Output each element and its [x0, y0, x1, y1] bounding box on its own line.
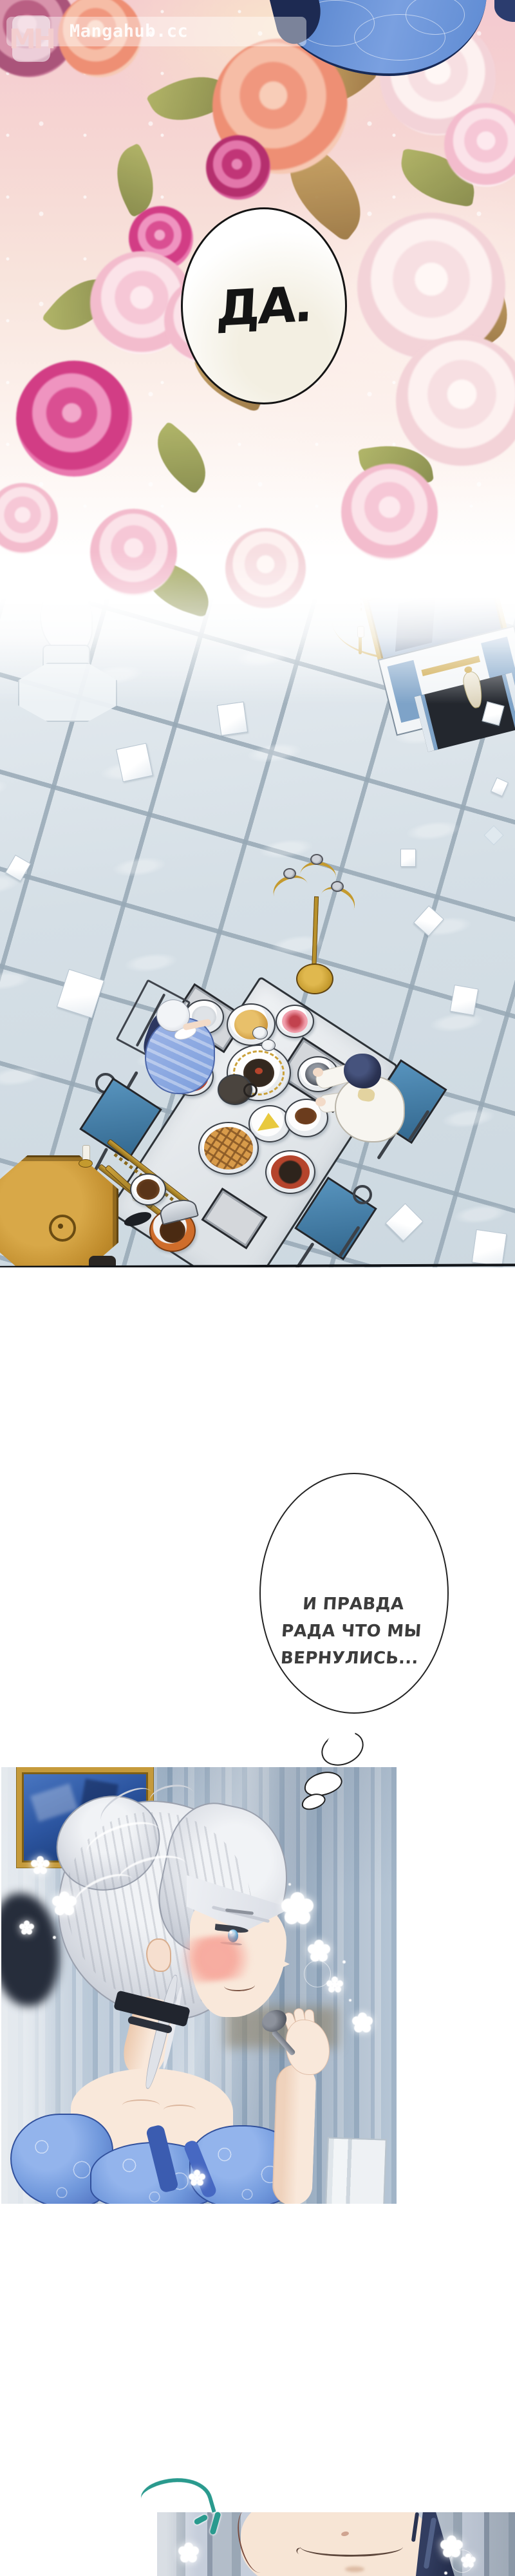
- flower-sparkle: [332, 1982, 337, 1987]
- blush: [172, 1931, 260, 1985]
- thought-line-1: И ПРАВДА: [302, 1591, 405, 1618]
- cup: [261, 1039, 276, 1051]
- cart-dish: [130, 1173, 166, 1206]
- woman-portrait-panel: [1, 1767, 397, 2204]
- rose-flower: [206, 135, 270, 200]
- rose-flower: [16, 361, 132, 477]
- thought-bubble-text: И ПРАВДА РАДА ЧТО МЫ ВЕРНУЛИСЬ...: [252, 1474, 456, 1712]
- woman-arm: [272, 2064, 317, 2204]
- man-closeup-panel: [157, 2512, 515, 2576]
- sparkle-dot: [444, 2571, 447, 2575]
- scattered-paper: [400, 849, 416, 867]
- plate-red: [265, 1150, 315, 1194]
- collarbone-line: [122, 2099, 160, 2111]
- rose-flower: [90, 509, 177, 596]
- scattered-paper: [217, 701, 248, 735]
- plate-dessert: [276, 1005, 314, 1038]
- teapot: [218, 1074, 252, 1105]
- speech-bubble-yes-text: ДА.: [215, 275, 313, 337]
- speech-bubble-yes: ДА.: [181, 207, 347, 404]
- woman-ear: [146, 1938, 171, 1972]
- sparkle-dot: [349, 1999, 351, 2002]
- flower-sparkle: [359, 2020, 366, 2026]
- plate-waffle: [198, 1122, 259, 1175]
- flower-sparkle: [37, 1862, 43, 1868]
- flower-intro-panel: MH Mangahub.cc ДА.: [0, 0, 515, 657]
- cart-candle-cup: [79, 1159, 93, 1168]
- flower-sparkle: [24, 1926, 29, 1930]
- door-molding: [325, 2137, 387, 2204]
- sparkle-dot: [53, 1936, 56, 1939]
- thought-bubble-tail: [316, 1725, 369, 1772]
- comic-page: MH Mangahub.cc ДА.: [0, 0, 515, 2576]
- cart-kettle: [89, 1256, 116, 1266]
- flower-sparkle: [315, 1947, 323, 1955]
- scattered-paper: [116, 743, 153, 782]
- thought-line-3: ВЕРНУЛИСЬ...: [279, 1645, 419, 1672]
- sparkle-ring: [451, 2550, 474, 2573]
- flower-sparkle: [194, 2175, 200, 2181]
- scattered-paper: [472, 1229, 507, 1267]
- sparkle-dot: [342, 1960, 346, 1964]
- man-hair: [344, 1054, 381, 1088]
- flower-sparkle: [292, 1904, 303, 1914]
- dining-room-panel: [0, 565, 515, 1267]
- sparkle-dot: [288, 1883, 291, 1886]
- flower-sparkle: [185, 2550, 192, 2556]
- chin-shadow: [345, 2566, 364, 2572]
- rose-flower: [341, 464, 438, 560]
- thought-bubble: И ПРАВДА РАДА ЧТО МЫ ВЕРНУЛИСЬ...: [259, 1473, 449, 1714]
- cup: [252, 1027, 268, 1039]
- watermark-logo: MH: [12, 15, 50, 62]
- flower-sparkle: [61, 1900, 68, 1908]
- watermark-site-text: Mangahub.cc: [70, 21, 188, 41]
- watermark-logo-text: MH: [9, 23, 53, 55]
- man-hand: [313, 1068, 323, 1077]
- scattered-paper: [450, 985, 479, 1016]
- rose-flower: [225, 528, 306, 609]
- thought-line-2: РАДА ЧТО МЫ: [281, 1618, 422, 1645]
- sparkle-ring: [304, 1960, 331, 1987]
- collarbone-line: [164, 2105, 196, 2115]
- man-hand: [315, 1097, 326, 1106]
- flower-sparkle: [448, 2543, 455, 2550]
